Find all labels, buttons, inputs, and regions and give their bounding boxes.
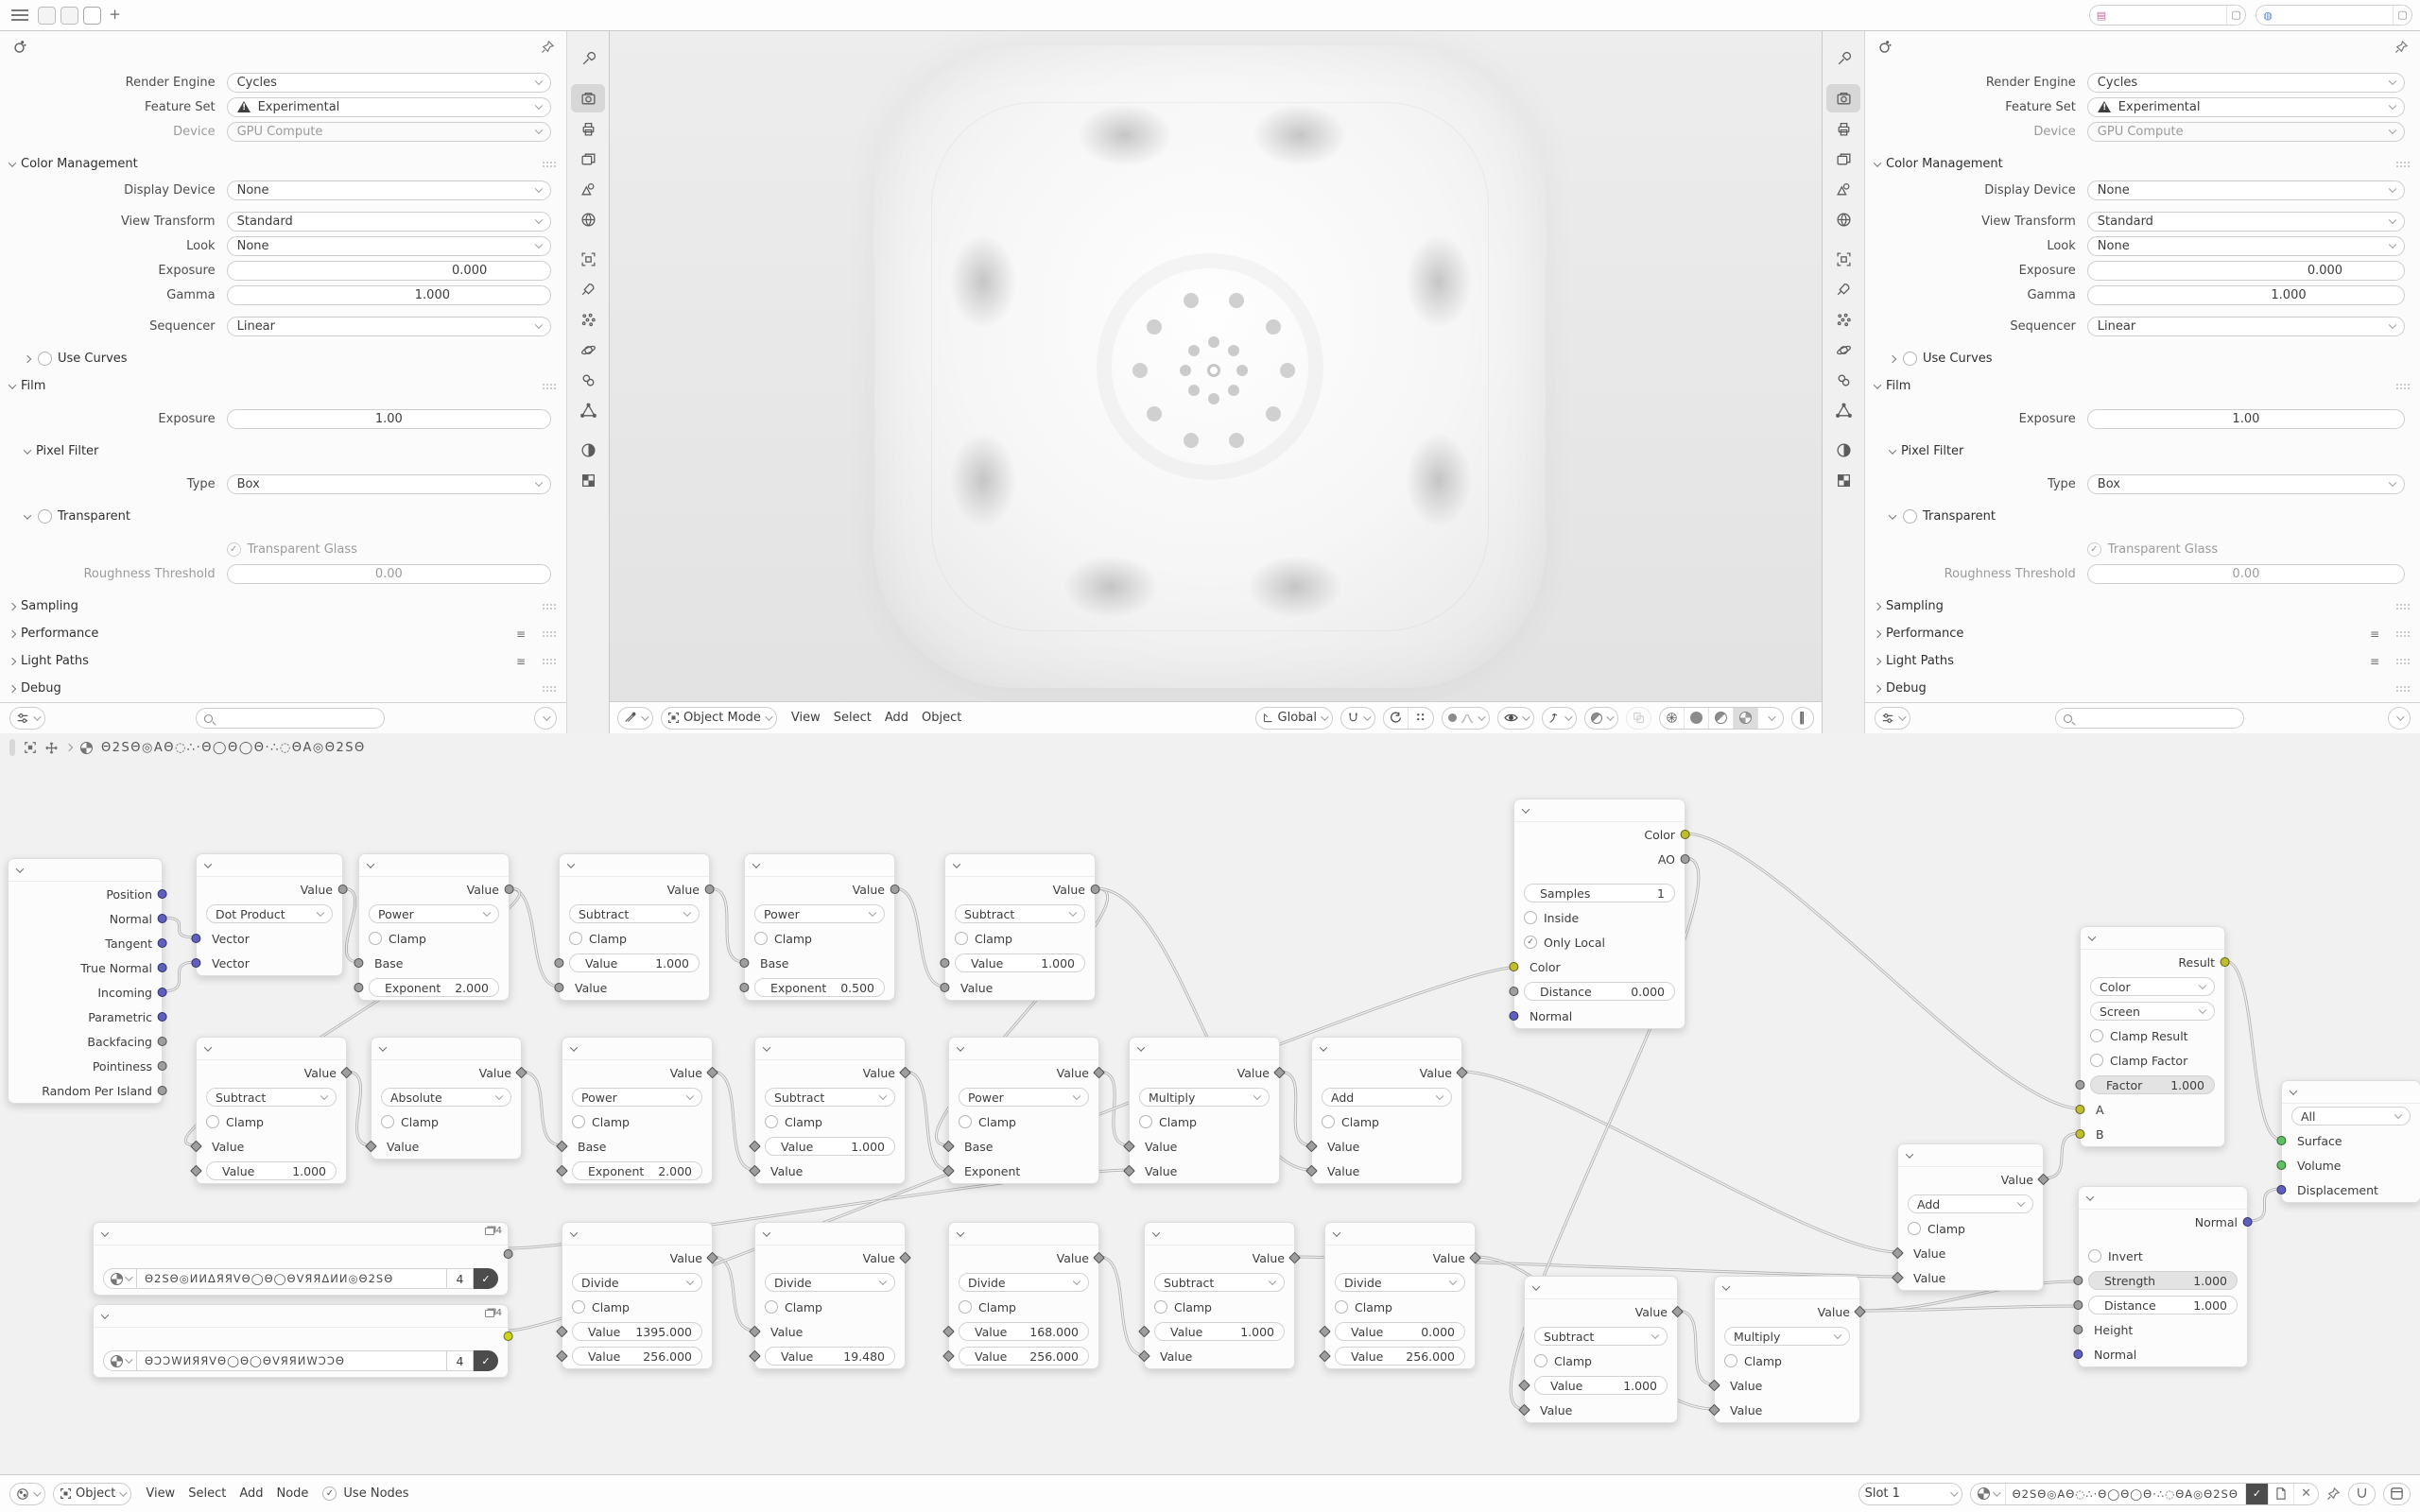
new-scene-icon[interactable]: ▢ [2393,6,2411,25]
feature-set-dropdown[interactable]: Experimental [227,97,551,117]
tab-material-icon[interactable] [1826,436,1860,464]
editor-type-button[interactable] [9,1483,45,1505]
mode-dropdown[interactable]: Object Mode [661,707,777,730]
socket[interactable] [554,983,563,992]
panel-header-pixel-filter[interactable]: Pixel Filter [0,438,566,465]
socket[interactable] [705,885,715,894]
viewport-menu-object[interactable]: Object [915,711,968,725]
gamma-slider[interactable]: 1.000 [2087,285,2405,305]
node-header[interactable] [359,854,509,877]
node-subtract-4[interactable]: ValueSubtractClampValue1.000Value [754,1037,906,1184]
node-subtract-2[interactable]: ValueSubtractClampValue1.000Value [944,853,1096,1001]
node-header[interactable] [1312,1038,1461,1060]
socket[interactable] [2073,1276,2083,1285]
visibility-dropdown[interactable] [1497,707,1534,730]
node-header[interactable] [197,1038,346,1060]
node-operation-dropdown[interactable]: Absolute [381,1088,511,1107]
scene-name-input[interactable] [2279,6,2393,25]
node-operation-dropdown[interactable]: Divide [959,1273,1089,1292]
node-menu-view[interactable]: View [139,1486,181,1501]
tab-viewlayer-icon[interactable] [571,145,605,173]
socket[interactable] [158,1037,167,1046]
tab-render-icon[interactable] [571,84,605,112]
node-image-texture-1[interactable]: 4Θ2SΘ◎ИИΔЯЯVΘ◯Θ◯ΘVЯЯΔИИ◎Θ2SΘ4✓ [93,1222,509,1296]
node-header[interactable] [755,1038,905,1060]
value-field-distance[interactable]: Distance0.000 [1524,982,1675,1001]
tab-output-icon[interactable] [1826,114,1860,143]
node-canvas[interactable]: PositionNormalTangentTrue NormalIncoming… [0,733,2420,1512]
rendered-shading-icon[interactable] [1734,708,1758,729]
properties-editor-icon[interactable] [1876,39,1893,55]
socket[interactable] [504,1249,513,1259]
node-header[interactable]: 4 [94,1305,508,1328]
panel-header-debug[interactable]: Debug [1865,675,2420,702]
value-field-value[interactable]: Value256.000 [572,1347,702,1366]
editor-type-button[interactable] [9,707,45,730]
tab-world-icon[interactable] [1826,205,1860,233]
checkbox-use-curves[interactable] [38,352,52,366]
node-operation-dropdown[interactable]: Multiply [1139,1088,1270,1107]
tab-scene-icon[interactable] [571,175,605,203]
solid-shading-icon[interactable] [1685,708,1709,729]
exposure-field[interactable]: 1.00 [227,409,551,429]
node-operation-dropdown[interactable]: Screen [2090,1002,2215,1021]
node-header[interactable] [1525,1277,1677,1299]
pin-icon[interactable] [2326,1486,2341,1501]
tab-tool-icon[interactable] [571,44,605,73]
socket[interactable] [1509,1011,1518,1021]
socket[interactable] [158,889,167,899]
node-header[interactable] [560,854,709,877]
editor-type-button[interactable] [1875,707,1910,730]
checkbox-transparent[interactable] [38,509,52,524]
socket[interactable] [554,958,563,968]
socket[interactable] [2276,1136,2286,1145]
node-operation-dropdown[interactable]: Subtract [206,1088,337,1107]
feature-set-dropdown[interactable]: Experimental [2087,97,2405,117]
panel-header-debug[interactable]: Debug [0,675,566,702]
socket[interactable] [1509,987,1518,996]
pin-icon[interactable] [2394,40,2409,54]
properties-filter-button[interactable] [2388,707,2411,730]
render-engine-dropdown[interactable]: Cycles [2087,73,2405,93]
tab-modifiers-icon[interactable] [1826,275,1860,303]
node-header[interactable] [1325,1223,1475,1246]
node-header[interactable] [949,1223,1098,1246]
socket[interactable] [2075,1105,2084,1114]
image-users-count[interactable]: 4 [447,1350,474,1371]
node-divide-2[interactable]: ValueDivideClampValueValue19.480 [754,1222,906,1369]
value-field-value[interactable]: Value0.000 [1335,1322,1465,1341]
sequencer-dropdown[interactable]: Linear [227,317,551,336]
socket[interactable] [940,983,949,992]
panel-header-color-management[interactable]: Color Management [0,150,566,178]
node-ambient-occlusion[interactable]: ColorAOSamples1Inside✓Only LocalColorDis… [1513,799,1685,1029]
tab-world-icon[interactable] [571,205,605,233]
exposure-slider[interactable]: 0.000 [2087,261,2405,281]
image-name-field[interactable]: ΘƆƆWИЯЯVΘ◯Θ◯ΘVЯЯИWƆƆΘ [137,1350,447,1371]
socket[interactable] [158,1086,167,1095]
tab-particles-icon[interactable] [1826,305,1860,334]
node-header[interactable] [1145,1223,1294,1246]
node-header[interactable] [1514,799,1685,822]
proportional-editing-group[interactable] [1383,707,1434,730]
tab-physics-icon[interactable] [571,335,605,364]
node-multiply-1[interactable]: ValueMultiplyClampValueValue [1129,1037,1280,1184]
node-header[interactable] [2081,927,2224,950]
socket[interactable] [890,885,900,894]
checkbox-clamp[interactable] [569,932,582,945]
new-material-button[interactable] [2269,1484,2294,1504]
node-operation-dropdown[interactable]: Power [572,1088,702,1107]
node-operation-dropdown[interactable]: Power [369,904,499,923]
pin-icon[interactable] [541,40,555,54]
fake-user-toggle[interactable]: ✓ [2246,1484,2269,1504]
drag-grip-icon[interactable] [542,658,557,665]
socket[interactable] [739,958,749,968]
fake-user-toggle[interactable]: ✓ [474,1350,498,1371]
socket[interactable] [191,934,200,943]
value-field-exponent[interactable]: Exponent0.500 [754,978,885,997]
shading-mode-group[interactable] [1659,707,1784,730]
node-divide-1[interactable]: ValueDivideClampValue1395.000Value256.00… [562,1222,713,1369]
image-users-count[interactable]: 4 [447,1268,474,1289]
checkbox-clamp[interactable] [754,932,768,945]
value-field-samples[interactable]: Samples1 [1524,884,1675,902]
value-field-exponent[interactable]: Exponent2.000 [369,978,499,997]
shader-editor[interactable]: Θ2SΘ◎AΘ◌∴·Θ◯Θ◯Θ·∴◌ΘA◎Θ2SΘ PositionNormal… [0,733,2420,1512]
socket[interactable] [1091,885,1100,894]
node-dot-product[interactable]: ValueDot ProductVectorVector [196,853,343,976]
type-dropdown[interactable]: Box [227,474,551,494]
panel-header-pixel-filter[interactable]: Pixel Filter [1865,438,2420,465]
socket[interactable] [191,958,200,968]
node-power-3[interactable]: ValuePowerClampBaseExponent2.000 [562,1037,713,1184]
socket[interactable] [158,1061,167,1071]
node-header[interactable] [755,1223,905,1246]
look-dropdown[interactable]: None [2087,236,2405,256]
checkbox-use-curves[interactable] [1903,352,1917,366]
tab-texture-icon[interactable] [1826,466,1860,494]
panel-header-use-curves[interactable]: Use Curves [0,345,566,372]
browse-image-button[interactable] [103,1350,137,1371]
material-name-field[interactable]: Θ2SΘ◎AΘ◌∴·Θ◯Θ◯Θ·∴◌ΘA◎Θ2SΘ [2013,1487,2238,1501]
drag-grip-icon[interactable] [2395,161,2411,168]
socket[interactable] [2073,1325,2083,1334]
material-slot-dropdown[interactable]: Slot 1 [1858,1483,1962,1505]
tab-constraints-icon[interactable] [571,366,605,394]
tab-viewlayer-icon[interactable] [1826,145,1860,173]
menu-icon[interactable] [11,9,28,21]
checkbox-transparent-glass[interactable]: ✓ [2087,542,2101,557]
socket[interactable] [1681,854,1690,864]
checkbox-clamp[interactable] [206,1115,219,1128]
panel-header-performance[interactable]: Performance≡ [0,620,566,647]
browse-image-button[interactable] [103,1268,137,1289]
gamma-slider[interactable]: 1.000 [227,285,551,305]
node-header[interactable] [1898,1144,2043,1167]
node-header[interactable] [949,1038,1098,1060]
node-menu-add[interactable]: Add [233,1486,269,1501]
value-field-value[interactable]: Value1.000 [1154,1322,1285,1341]
node-header[interactable] [9,859,162,882]
drag-grip-icon[interactable] [542,161,557,168]
value-field-value[interactable]: Value1.000 [955,954,1085,972]
workspace-tab-1[interactable] [38,7,56,25]
tab-texture-icon[interactable] [571,466,605,494]
tab-scene-icon[interactable] [1826,175,1860,203]
panel-header-transparent[interactable]: Transparent [1865,503,2420,530]
socket[interactable] [338,885,348,894]
node-header[interactable] [745,854,894,877]
panel-header-light-paths[interactable]: Light Paths≡ [0,647,566,675]
region-handle[interactable] [9,739,15,756]
panel-header-sampling[interactable]: Sampling [0,593,566,620]
value-field-factor[interactable]: Factor1.000 [2090,1075,2215,1094]
checkbox-clamp[interactable] [1154,1300,1167,1314]
use-nodes-checkbox[interactable]: ✓ [322,1486,337,1501]
tab-output-icon[interactable] [571,114,605,143]
node-header[interactable] [2282,1081,2420,1104]
node-add-2[interactable]: ValueAddClampValueValue [1897,1143,2044,1291]
node-bump[interactable]: NormalInvertStrength1.000Distance1.000He… [2078,1186,2248,1367]
value-field-value[interactable]: Value256.000 [1335,1347,1465,1366]
socket[interactable] [158,914,167,923]
overlays-button[interactable] [2383,1483,2411,1505]
socket[interactable] [2276,1185,2286,1194]
node-operation-dropdown[interactable]: Power [959,1088,1089,1107]
value-field-value[interactable]: Value1.000 [1534,1376,1668,1395]
node-power-1[interactable]: ValuePowerClampBaseExponent2.000 [358,853,510,1001]
socket[interactable] [739,983,749,992]
node-header[interactable] [562,1038,712,1060]
value-field-value[interactable]: Value1.000 [206,1161,337,1180]
tab-modifiers-icon[interactable] [571,275,605,303]
checkbox-transparent-glass[interactable]: ✓ [227,542,241,557]
rotate-snap-icon[interactable] [1384,708,1409,729]
display-device-dropdown[interactable]: None [227,180,551,200]
add-workspace-button[interactable]: + [106,7,124,25]
checkbox-transparent[interactable] [1903,509,1917,524]
socket[interactable] [158,938,167,948]
properties-search-input[interactable] [2055,708,2244,729]
socket[interactable] [158,1012,167,1022]
tab-object-icon[interactable] [1826,245,1860,273]
socket[interactable] [2221,957,2230,967]
socket[interactable] [1509,962,1518,971]
roughness-threshold-field[interactable]: 0.00 [2087,564,2405,584]
panel-header-color-management[interactable]: Color Management [1865,150,2420,178]
drag-grip-icon[interactable] [542,383,557,390]
checkbox-clamp[interactable] [955,932,968,945]
node-header[interactable] [2079,1187,2247,1210]
socket[interactable] [2075,1129,2084,1139]
unlink-material-button[interactable]: ✕ [2294,1484,2318,1504]
snapping-button[interactable] [2348,1483,2376,1505]
fake-user-toggle[interactable]: ✓ [474,1268,498,1289]
node-header[interactable] [372,1038,521,1060]
node-power-2[interactable]: ValuePowerClampBaseExponent0.500 [744,853,895,1001]
wireframe-shading-icon[interactable] [1660,708,1685,729]
display-device-dropdown[interactable]: None [2087,180,2405,200]
pause-render-button[interactable]: ‖ [1791,707,1814,730]
drag-grip-icon[interactable] [2395,603,2411,610]
workspace-tab-2[interactable] [60,7,78,25]
node-multiply-2[interactable]: ValueMultiplyClampValueValue [1714,1276,1860,1423]
viewport-menu-view[interactable]: View [785,711,827,725]
drag-grip-icon[interactable] [542,685,557,693]
node-subtract-1[interactable]: ValueSubtractClampValue1.000Value [559,853,710,1001]
checkbox-clamp[interactable] [765,1115,778,1128]
drag-grip-icon[interactable] [2395,630,2411,638]
node-image-texture-2[interactable]: 4ΘƆƆWИЯЯVΘ◯Θ◯ΘVЯЯИWƆƆΘ4✓ [93,1304,509,1378]
checkbox-clamp[interactable] [572,1115,585,1128]
node-header[interactable] [945,854,1095,877]
exposure-field[interactable]: 1.00 [2087,409,2405,429]
value-field-exponent[interactable]: Exponent2.000 [572,1161,702,1180]
tab-objectdata-icon[interactable] [571,396,605,424]
node-operation-dropdown[interactable]: Color [2090,977,2215,996]
tab-object-icon[interactable] [571,245,605,273]
value-field-value[interactable]: Value168.000 [959,1322,1089,1341]
scene-selector[interactable]: ◍ ▢ [2256,5,2412,26]
checkbox-clamp[interactable] [1335,1300,1348,1314]
shader-type-dropdown[interactable]: Object [53,1483,131,1505]
checkbox-clamp[interactable] [959,1300,972,1314]
workspace-tab-3[interactable] [83,7,101,25]
viewport-menu-add[interactable]: Add [878,711,915,725]
socket[interactable] [2276,1160,2286,1170]
socket[interactable] [2075,1080,2084,1090]
checkbox-only-local[interactable]: ✓ [1524,936,1537,949]
sequencer-dropdown[interactable]: Linear [2087,317,2405,336]
use-nodes-toggle[interactable]: ✓ Use Nodes [322,1486,408,1501]
properties-filter-button[interactable] [534,707,557,730]
socket[interactable] [1681,830,1690,839]
value-field-value[interactable]: Value19.480 [765,1347,895,1366]
node-power-4[interactable]: ValuePowerClampBaseExponent [948,1037,1099,1184]
look-dropdown[interactable]: None [227,236,551,256]
tab-render-icon[interactable] [1826,84,1860,112]
node-subtract-5[interactable]: ValueSubtractClampValue1.000Value [1144,1222,1295,1369]
panel-header-transparent[interactable]: Transparent [0,503,566,530]
panel-header-film[interactable]: Film [0,372,566,400]
node-subtract-6[interactable]: ValueSubtractClampValue1.000Value [1524,1276,1678,1423]
node-header[interactable] [1130,1038,1279,1060]
tab-tool-icon[interactable] [1826,44,1860,73]
node-absolute[interactable]: ValueAbsoluteClampValue [371,1037,522,1160]
socket[interactable] [2073,1349,2083,1359]
node-operation-dropdown[interactable]: All [2291,1107,2411,1125]
checkbox-clamp[interactable] [1534,1354,1547,1367]
drag-grip-icon[interactable] [2395,658,2411,665]
node-header[interactable]: 4 [94,1223,508,1246]
value-field-value[interactable]: Value1.000 [765,1137,895,1156]
drag-grip-icon[interactable] [542,603,557,610]
tab-constraints-icon[interactable] [1826,366,1860,394]
checkbox-clamp-factor[interactable] [2090,1054,2103,1067]
node-operation-dropdown[interactable]: Divide [1335,1273,1465,1292]
checkbox-inside[interactable] [1524,911,1537,924]
view-transform-dropdown[interactable]: Standard [227,212,551,232]
socket[interactable] [504,1332,513,1341]
socket[interactable] [354,983,363,992]
node-operation-dropdown[interactable]: Divide [765,1273,895,1292]
preset-icon[interactable]: ≡ [2370,627,2378,641]
socket[interactable] [158,988,167,997]
new-viewlayer-icon[interactable]: ▢ [2226,6,2245,25]
node-geometry[interactable]: PositionNormalTangentTrue NormalIncoming… [8,858,163,1104]
checkbox-clamp[interactable] [381,1115,394,1128]
node-operation-dropdown[interactable]: Subtract [1534,1327,1668,1346]
xray-toggle[interactable] [1626,707,1651,730]
image-name-field[interactable]: Θ2SΘ◎ИИΔЯЯVΘ◯Θ◯ΘVЯЯΔИИ◎Θ2SΘ [137,1268,447,1289]
device-dropdown[interactable]: GPU Compute [227,122,551,142]
node-material-output[interactable]: AllSurfaceVolumeDisplacement [2281,1080,2420,1203]
overlays-dropdown[interactable] [1584,707,1618,730]
socket[interactable] [940,958,949,968]
node-operation-dropdown[interactable]: Power [754,904,885,923]
transform-orientation-dropdown[interactable]: Global [1255,707,1333,730]
drag-grip-icon[interactable] [2395,685,2411,693]
type-dropdown[interactable]: Box [2087,474,2405,494]
node-divide-4[interactable]: ValueDivideClampValue0.000Value256.000 [1324,1222,1476,1369]
value-field-value[interactable]: Value1.000 [569,954,700,972]
panel-header-film[interactable]: Film [1865,372,2420,400]
tab-material-icon[interactable] [571,436,605,464]
browse-material-button[interactable] [1971,1484,2006,1504]
panel-header-light-paths[interactable]: Light Paths≡ [1865,647,2420,675]
material-preview-icon[interactable] [1709,708,1734,729]
view-layer-selector[interactable]: ▤ ▢ [2089,5,2246,26]
view-layer-name-input[interactable] [2113,6,2226,25]
node-add-1[interactable]: ValueAddClampValueValue [1311,1037,1462,1184]
checkbox-clamp[interactable] [572,1300,585,1314]
panel-header-use-curves[interactable]: Use Curves [1865,345,2420,372]
gizmo-dropdown[interactable] [1542,707,1577,730]
node-header[interactable] [1715,1277,1859,1299]
render-engine-dropdown[interactable]: Cycles [227,73,551,93]
node-operation-dropdown[interactable]: Add [1908,1194,2033,1213]
node-subtract-3[interactable]: ValueSubtractClampValueValue1.000 [196,1037,347,1184]
node-operation-dropdown[interactable]: Add [1322,1088,1452,1107]
socket[interactable] [2243,1217,2253,1227]
value-field-distance[interactable]: Distance1.000 [2088,1296,2238,1314]
properties-search-input[interactable] [196,708,385,729]
node-menu-node[interactable]: Node [269,1486,315,1501]
checkbox-clamp[interactable] [1139,1115,1152,1128]
checkbox-clamp-result[interactable] [2090,1029,2103,1042]
drag-grip-icon[interactable] [2395,383,2411,390]
node-divide-3[interactable]: ValueDivideClampValue168.000Value256.000 [948,1222,1099,1369]
preset-icon[interactable]: ≡ [516,627,525,641]
snap-dropdown[interactable] [1340,707,1375,730]
panel-header-sampling[interactable]: Sampling [1865,593,2420,620]
node-header[interactable] [562,1223,712,1246]
socket[interactable] [505,885,514,894]
device-dropdown[interactable]: GPU Compute [2087,122,2405,142]
view-transform-dropdown[interactable]: Standard [2087,212,2405,232]
node-operation-dropdown[interactable]: Dot Product [206,904,333,923]
node-operation-dropdown[interactable]: Subtract [765,1088,895,1107]
node-operation-dropdown[interactable]: Multiply [1724,1327,1850,1346]
value-field-value[interactable]: Value256.000 [959,1347,1089,1366]
tab-physics-icon[interactable] [1826,335,1860,364]
socket[interactable] [158,963,167,972]
preset-icon[interactable]: ≡ [516,655,525,668]
roughness-threshold-field[interactable]: 0.00 [227,564,551,584]
checkbox-clamp[interactable] [1908,1222,1921,1235]
